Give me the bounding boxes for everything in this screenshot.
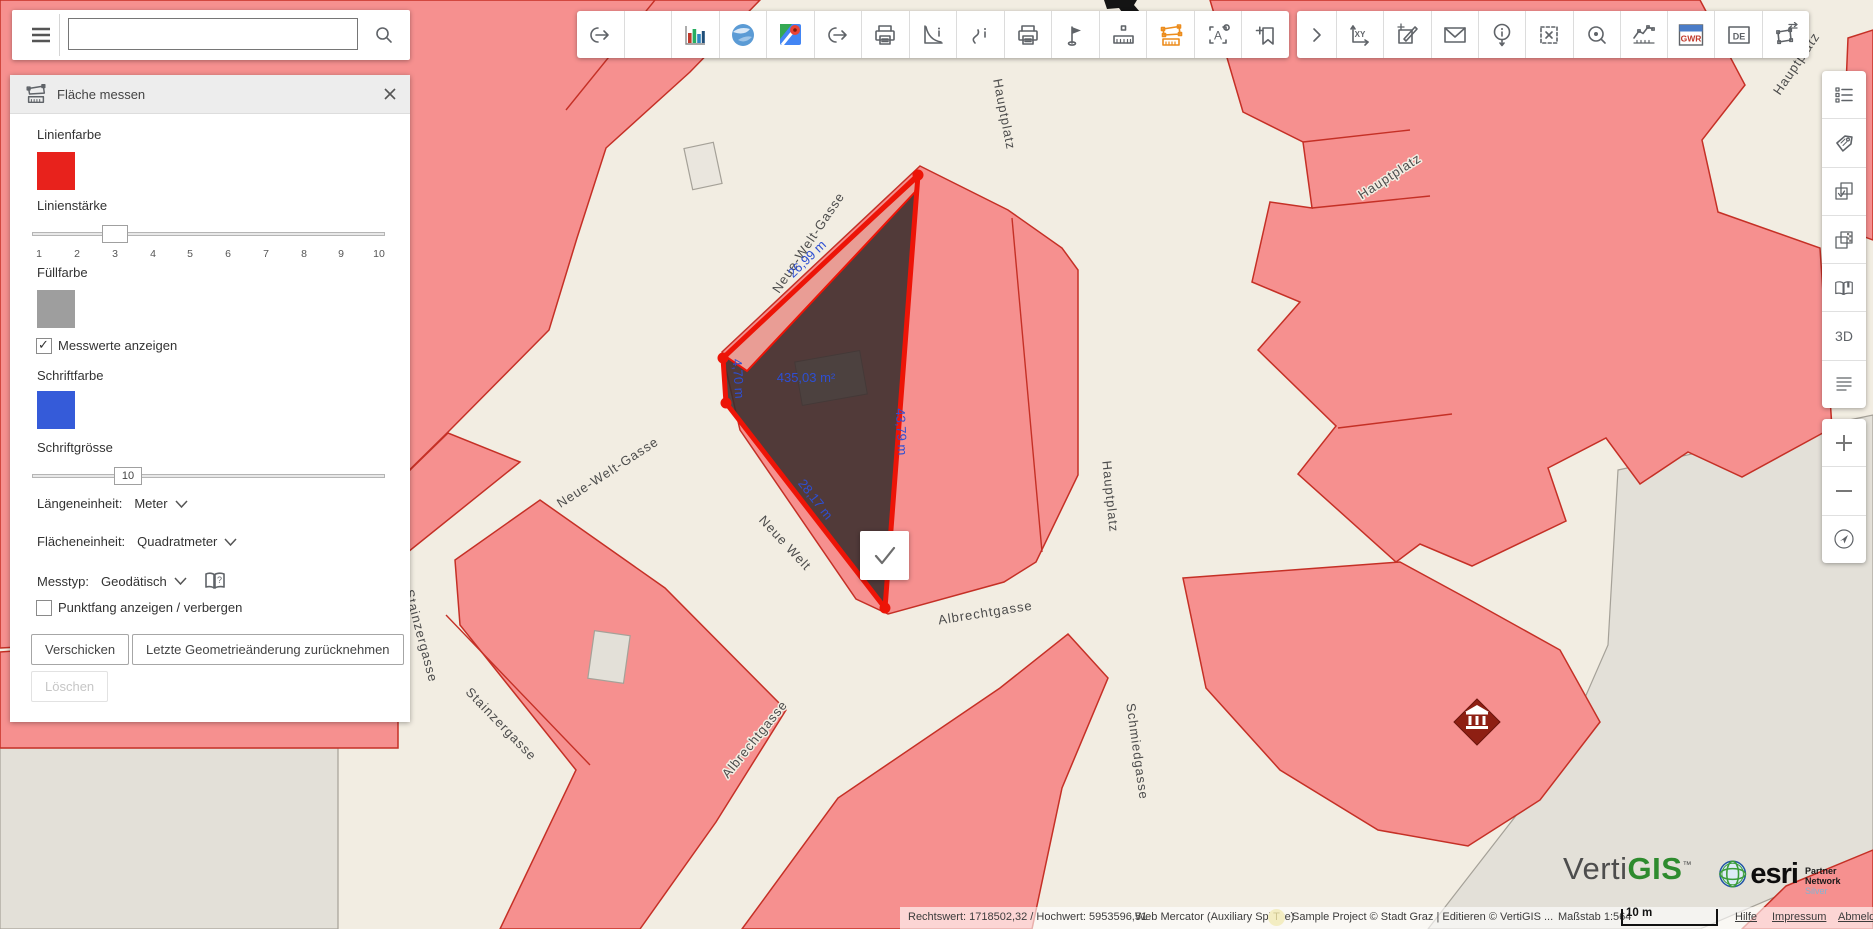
edit-geometry-icon	[1395, 22, 1421, 48]
toolbar-route-info-button[interactable]	[957, 11, 1005, 58]
area-unit-value: Quadratmeter	[137, 534, 217, 549]
font-color-swatch[interactable]	[37, 391, 75, 429]
line-width-slider-handle[interactable]	[102, 225, 128, 243]
font-color-label: Schriftfarbe	[37, 368, 103, 383]
toolbar-text-label-button[interactable]: A	[1195, 11, 1243, 58]
search-icon[interactable]	[374, 25, 394, 45]
minus-icon	[1833, 480, 1855, 502]
route-info-icon	[969, 23, 993, 47]
sidebar-selection-button[interactable]	[1822, 168, 1866, 216]
gwr-icon: GWR	[1677, 22, 1705, 48]
vertex-handle[interactable]	[721, 398, 732, 409]
report-curve-icon	[921, 23, 945, 47]
elevation-profile-icon	[1631, 22, 1657, 48]
fill-color-label: Füllfarbe	[37, 265, 88, 280]
toolbar-report-button[interactable]	[910, 11, 958, 58]
show-values-label: Messwerte anzeigen	[58, 338, 177, 353]
partner-label: Partner Network	[1805, 866, 1873, 886]
vertigis-logo-prefix: Verti	[1563, 851, 1628, 886]
app-window: Neue-Welt-Gasse Neue-Welt-Gasse Neue Wel…	[0, 0, 1873, 929]
chevron-down-icon	[174, 577, 187, 585]
svg-text:XY: XY	[1355, 30, 1366, 39]
measure-type-value: Geodätisch	[101, 574, 167, 589]
svg-text:A: A	[1214, 28, 1222, 42]
undo-geometry-button[interactable]: Letzte Geometrieänderung zurücknehmen	[132, 634, 404, 665]
sidebar-layer-list-button[interactable]	[1822, 71, 1866, 119]
close-icon[interactable]	[382, 86, 398, 102]
sidebar-bookmarks-button[interactable]	[1822, 264, 1866, 312]
map-block-gray-sw	[0, 748, 338, 929]
de-icon: DE	[1726, 23, 1752, 47]
vertigis-logo: VertiGIS™	[1563, 851, 1692, 887]
toolbar-zoom-selection-button[interactable]	[1574, 11, 1621, 58]
logout-link[interactable]: Abmelden	[1838, 911, 1873, 923]
identify-icon	[1490, 22, 1514, 48]
legend-icon	[1833, 373, 1855, 395]
slider-tick: 5	[187, 248, 193, 260]
layer-list-icon	[1833, 84, 1855, 106]
chevron-down-icon	[175, 500, 188, 508]
toolbar-secondary: XY	[1297, 11, 1809, 58]
trademark: ™	[1682, 860, 1692, 870]
toolbar-statistics-button[interactable]	[672, 11, 720, 58]
my-location-button[interactable]	[1822, 516, 1866, 563]
length-unit-value: Meter	[134, 496, 167, 511]
toolbar-measure-area-button[interactable]	[1147, 11, 1195, 58]
zoom-out-button[interactable]	[1822, 467, 1866, 515]
toolbar-clear-selection-button[interactable]	[1526, 11, 1573, 58]
slider-tick: 2	[74, 248, 80, 260]
font-size-label: Schriftgrösse	[37, 440, 113, 455]
slider-tick: 8	[301, 248, 307, 260]
map-small-building-2	[588, 631, 630, 684]
sidebar-transparency-button[interactable]	[1822, 216, 1866, 264]
confirm-measurement-button[interactable]	[860, 531, 909, 580]
check-icon	[872, 545, 898, 567]
plus-icon	[1833, 432, 1855, 454]
bookmarks-book-icon	[1833, 277, 1855, 299]
selection-check-icon	[1833, 180, 1855, 202]
impressum-link[interactable]: Impressum	[1772, 911, 1826, 923]
transform-geometry-icon	[1772, 22, 1800, 48]
toolbar-edit-geometry-button[interactable]	[1384, 11, 1431, 58]
esri-logo: esri Partner Network Silver	[1718, 859, 1873, 896]
vertex-handle[interactable]	[913, 170, 924, 181]
panel-title: Fläche messen	[57, 87, 145, 102]
measure-distance-icon	[1111, 23, 1136, 47]
print-icon	[873, 23, 897, 47]
partner-tier: Silver	[1805, 886, 1873, 896]
line-color-label: Linienfarbe	[37, 127, 101, 142]
measure-type-label: Messtyp:	[37, 574, 89, 589]
divider	[59, 14, 60, 56]
area-unit-select[interactable]: Flächeneinheit: Quadratmeter	[37, 534, 237, 549]
toolbar-coordinates-button[interactable]: XY	[1337, 11, 1384, 58]
toolbar-google-earth-button[interactable]	[720, 11, 768, 58]
share-arrow-icon	[826, 23, 850, 47]
slider-tick: 3	[112, 248, 118, 260]
scalebar-label: 10 m	[1626, 907, 1652, 919]
show-values-checkbox[interactable]	[36, 338, 52, 354]
slider-tick: 9	[338, 248, 344, 260]
measure-area-panel: Fläche messen Linienfarbe Linienstärke 1…	[10, 75, 410, 722]
zoom-selection-icon	[1585, 23, 1609, 47]
flag-icon	[1065, 23, 1087, 47]
sidebar-tools: 3D	[1822, 71, 1866, 408]
esri-globe-icon	[1718, 859, 1747, 889]
vertex-handle[interactable]	[880, 603, 891, 614]
toolbar-print-alt-button[interactable]	[1005, 11, 1053, 58]
user-badge[interactable]: T	[1268, 909, 1285, 926]
toolbar-measure-distance-button[interactable]	[1100, 11, 1148, 58]
measure-area-icon	[24, 82, 48, 106]
zoom-in-button[interactable]	[1822, 419, 1866, 467]
slider-tick: 6	[225, 248, 231, 260]
font-size-slider-handle[interactable]: 10	[114, 467, 142, 485]
vertigis-logo-suffix: GIS	[1628, 851, 1683, 886]
zoom-controls	[1822, 419, 1866, 563]
area-value-label: 435,03 m²	[777, 370, 836, 385]
toolbar-print-button[interactable]	[862, 11, 910, 58]
statistics-chart-icon	[683, 23, 707, 47]
toolbar-share-button[interactable]	[815, 11, 863, 58]
3d-label: 3D	[1835, 328, 1853, 344]
fill-color-swatch[interactable]	[37, 290, 75, 328]
help-book-icon[interactable]: ?	[203, 570, 227, 592]
delete-button[interactable]: Löschen	[31, 671, 108, 702]
coordinates-readout: Rechtswert: 1718502,32 / Hochwert: 59535…	[908, 911, 1147, 923]
toolbar-export-button[interactable]	[577, 11, 625, 58]
line-width-label: Linienstärke	[37, 198, 107, 213]
line-color-swatch[interactable]	[37, 152, 75, 190]
search-container	[12, 10, 410, 60]
sidebar-tags-button[interactable]	[1822, 119, 1866, 167]
status-bar: Rechtswert: 1718502,32 / Hochwert: 59535…	[900, 907, 1873, 929]
toolbar-identify-button[interactable]	[1479, 11, 1526, 58]
toolbar-empty-slot[interactable]	[625, 11, 673, 58]
slider-tick: 4	[150, 248, 156, 260]
font-size-slider-track[interactable]	[32, 474, 385, 478]
partner-network-label: Partner Network Silver	[1805, 866, 1873, 896]
measure-type-select[interactable]: Messtyp: Geodätisch ?	[37, 570, 227, 592]
text-label-icon: A	[1205, 22, 1231, 48]
export-icon	[588, 23, 612, 47]
vertex-handle[interactable]	[718, 353, 729, 364]
svg-text:?: ?	[217, 575, 222, 585]
toolbar-de-button[interactable]: DE	[1715, 11, 1762, 58]
svg-text:DE: DE	[1732, 31, 1745, 41]
toolbar-google-maps-button[interactable]	[767, 11, 815, 58]
toolbar-main: A	[577, 11, 1289, 58]
snap-checkbox[interactable]	[36, 600, 52, 616]
toolbar-mail-button[interactable]	[1432, 11, 1479, 58]
send-button[interactable]: Verschicken	[31, 634, 129, 665]
slider-tick: 1	[36, 248, 42, 260]
slider-tick: 10	[373, 248, 385, 260]
bookmark-add-icon	[1254, 23, 1278, 47]
slider-tick: 7	[263, 248, 269, 260]
chevron-down-icon	[224, 538, 237, 546]
scalebar: 10 m	[1621, 909, 1718, 926]
edge-length-label: 43,79 m	[893, 408, 910, 456]
toolbar-gwr-button[interactable]: GWR	[1668, 11, 1715, 58]
print-alt-icon	[1016, 23, 1040, 47]
clear-selection-icon	[1537, 23, 1561, 47]
tags-icon	[1833, 132, 1855, 154]
coordinates-xy-icon: XY	[1347, 22, 1373, 48]
line-width-slider-track[interactable]	[32, 232, 385, 236]
copyright-label: Sample Project © Stadt Graz | Editieren …	[1292, 911, 1553, 923]
toolbar-transform-geometry-button[interactable]	[1763, 11, 1809, 58]
locate-icon	[1832, 527, 1856, 551]
google-maps-icon	[778, 22, 803, 47]
mail-icon	[1442, 24, 1468, 46]
measure-area-active-icon	[1158, 22, 1184, 48]
sidebar-legend-button[interactable]	[1822, 361, 1866, 408]
length-unit-label: Längeneinheit:	[37, 496, 122, 511]
toolbar-elevation-profile-button[interactable]	[1621, 11, 1668, 58]
edge-length-label: 4,70 m	[730, 358, 748, 399]
help-link[interactable]: Hilfe	[1735, 911, 1757, 923]
panel-header: Fläche messen	[10, 75, 410, 114]
snap-label: Punktfang anzeigen / verbergen	[58, 600, 242, 615]
toolbar-bookmark-add-button[interactable]	[1242, 11, 1289, 58]
sidebar-3d-button[interactable]: 3D	[1822, 312, 1866, 360]
length-unit-select[interactable]: Längeneinheit: Meter	[37, 496, 188, 511]
search-input[interactable]	[68, 18, 358, 50]
toolbar-flag-button[interactable]	[1052, 11, 1100, 58]
google-earth-icon	[730, 22, 756, 48]
toolbar-expand-button[interactable]	[1297, 11, 1337, 58]
menu-icon[interactable]	[29, 24, 53, 46]
transparency-icon	[1833, 229, 1855, 251]
area-unit-label: Flächeneinheit:	[37, 534, 125, 549]
svg-text:GWR: GWR	[1681, 33, 1702, 43]
esri-wordmark: esri	[1750, 859, 1798, 889]
chevron-right-icon	[1307, 25, 1327, 45]
